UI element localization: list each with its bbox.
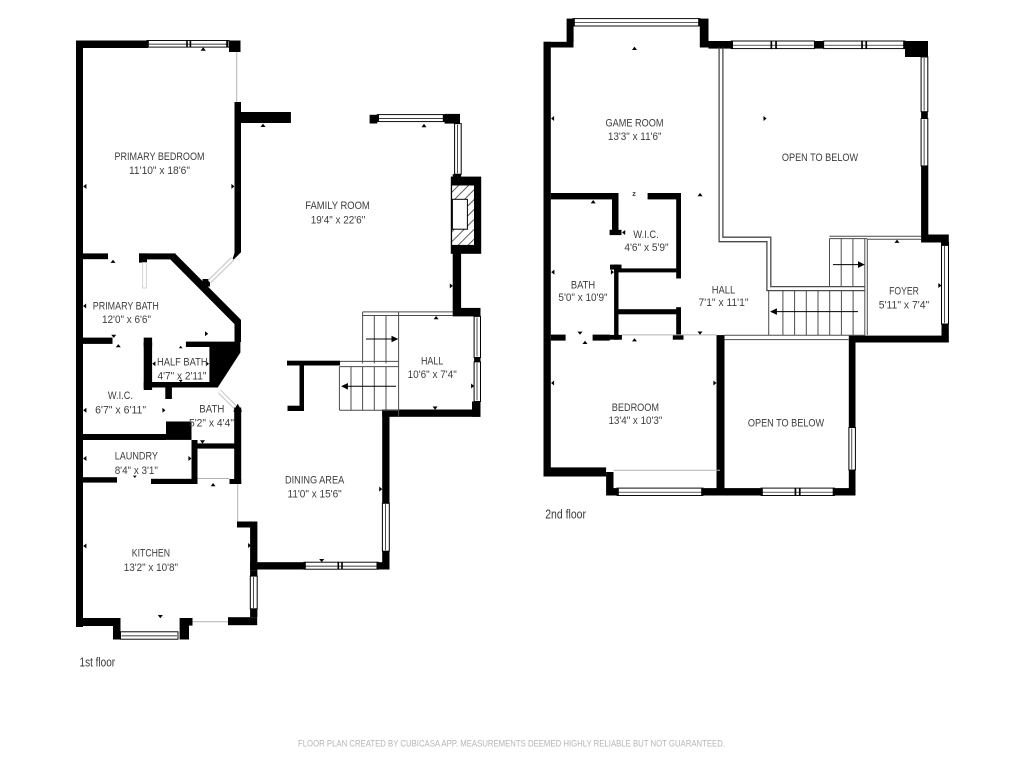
svg-text:5'0" x 10'9": 5'0" x 10'9" [558,292,607,304]
svg-text:W.I.C.: W.I.C. [108,390,133,402]
svg-text:7'1" x 11'1": 7'1" x 11'1" [699,297,749,309]
svg-text:1st floor: 1st floor [80,655,116,669]
svg-text:13'2" x 10'8": 13'2" x 10'8" [124,562,178,574]
svg-text:BEDROOM: BEDROOM [612,402,659,414]
svg-text:4'7" x 2'11": 4'7" x 2'11" [158,370,207,382]
svg-text:12'0" x 6'6": 12'0" x 6'6" [102,314,151,326]
svg-text:HALL: HALL [421,355,444,367]
svg-text:FAMILY ROOM: FAMILY ROOM [305,200,370,212]
svg-text:FOYER: FOYER [889,286,919,298]
svg-text:BATH: BATH [571,279,595,291]
svg-text:2nd floor: 2nd floor [545,508,586,522]
svg-text:BATH: BATH [199,403,224,415]
svg-text:HALF BATH: HALF BATH [157,357,208,369]
svg-text:KITCHEN: KITCHEN [132,548,170,560]
svg-text:DINING AREA: DINING AREA [285,474,345,486]
svg-text:PRIMARY BEDROOM: PRIMARY BEDROOM [115,151,205,163]
svg-text:z: z [632,189,636,198]
svg-text:GAME ROOM: GAME ROOM [606,118,664,130]
svg-text:4'6" x 5'9": 4'6" x 5'9" [624,242,668,254]
svg-text:11'0" x 15'6": 11'0" x 15'6" [288,489,342,501]
svg-text:8'4" x 3'1": 8'4" x 3'1" [115,465,158,477]
svg-text:19'4" x 22'6": 19'4" x 22'6" [311,214,366,226]
svg-text:HALL: HALL [712,284,736,296]
svg-text:LAUNDRY: LAUNDRY [115,451,159,463]
svg-text:13'4" x 10'3": 13'4" x 10'3" [608,415,662,427]
svg-text:OPEN TO BELOW: OPEN TO BELOW [748,418,824,430]
svg-text:FLOOR PLAN CREATED BY CUBICASA: FLOOR PLAN CREATED BY CUBICASA APP. MEAS… [298,738,725,748]
svg-text:5'11" x 7'4": 5'11" x 7'4" [879,300,929,312]
svg-text:5'2" x 4'4": 5'2" x 4'4" [189,418,234,430]
svg-text:11'10" x 18'6": 11'10" x 18'6" [129,165,190,177]
svg-text:W.I.C.: W.I.C. [633,229,659,241]
svg-text:6'7" x 6'11": 6'7" x 6'11" [95,405,146,417]
svg-text:PRIMARY BATH: PRIMARY BATH [93,301,159,313]
svg-text:13'3" x 11'6": 13'3" x 11'6" [608,131,662,143]
svg-text:OPEN TO BELOW: OPEN TO BELOW [782,152,858,164]
svg-text:10'6" x 7'4": 10'6" x 7'4" [408,369,457,381]
